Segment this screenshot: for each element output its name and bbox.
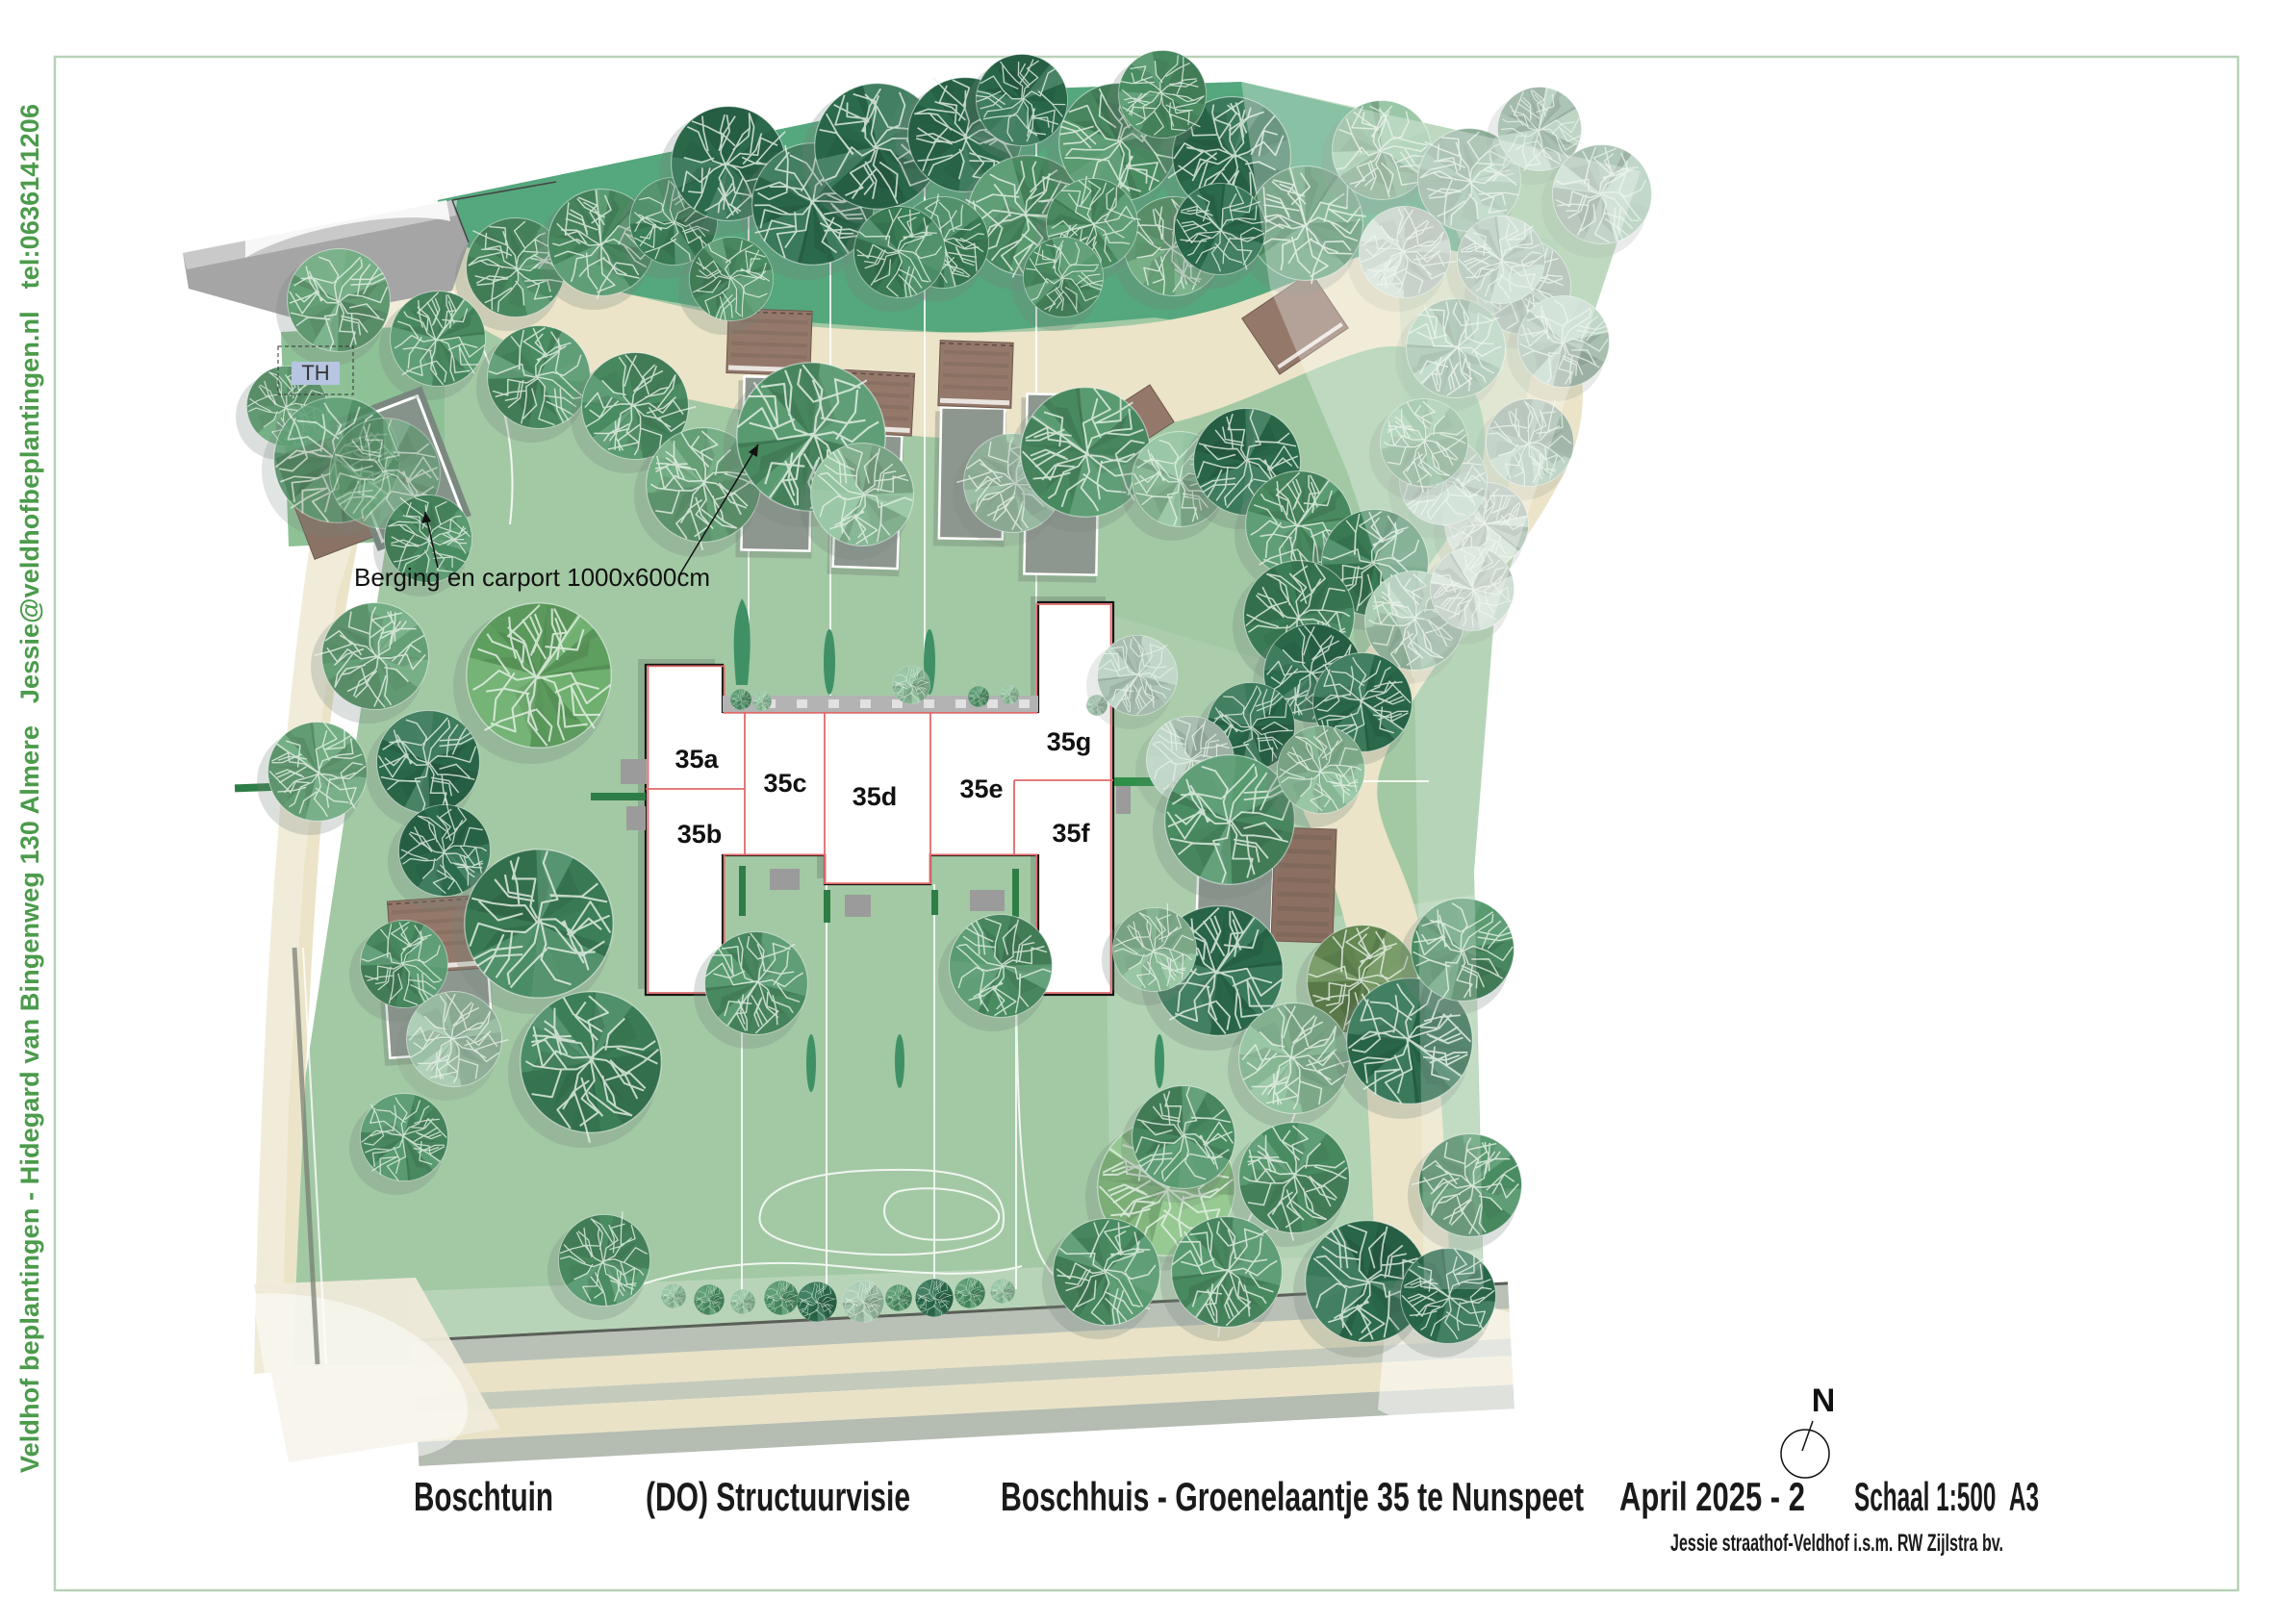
svg-text:Boschtuin: Boschtuin bbox=[414, 1474, 553, 1519]
svg-text:Veldhof beplantingen - Hidegar: Veldhof beplantingen - Hidegard van Bing… bbox=[15, 104, 44, 1473]
svg-text:35e: 35e bbox=[959, 774, 1003, 803]
svg-text:N: N bbox=[1812, 1383, 1836, 1419]
svg-text:TH: TH bbox=[301, 361, 329, 385]
svg-text:April 2025 - 2: April 2025 - 2 bbox=[1619, 1474, 1805, 1519]
svg-text:Boschhuis - Groenelaantje 35 t: Boschhuis - Groenelaantje 35 te Nunspeet bbox=[1001, 1474, 1584, 1519]
svg-text:35g: 35g bbox=[1047, 727, 1092, 756]
svg-text:Berging en carport 1000x600cm: Berging en carport 1000x600cm bbox=[354, 563, 710, 592]
svg-text:35d: 35d bbox=[853, 782, 898, 811]
svg-text:35c: 35c bbox=[763, 769, 806, 798]
svg-text:Jessie straathof-Veldhof i.s.m: Jessie straathof-Veldhof i.s.m. RW Zijls… bbox=[1670, 1530, 2003, 1557]
svg-text:(DO) Structuurvisie: (DO) Structuurvisie bbox=[646, 1474, 910, 1519]
svg-text:35f: 35f bbox=[1052, 819, 1090, 848]
svg-text:35a: 35a bbox=[675, 745, 719, 774]
svg-text:35b: 35b bbox=[677, 820, 723, 849]
svg-text:Schaal 1:500 A3: Schaal 1:500 A3 bbox=[1854, 1474, 2039, 1519]
